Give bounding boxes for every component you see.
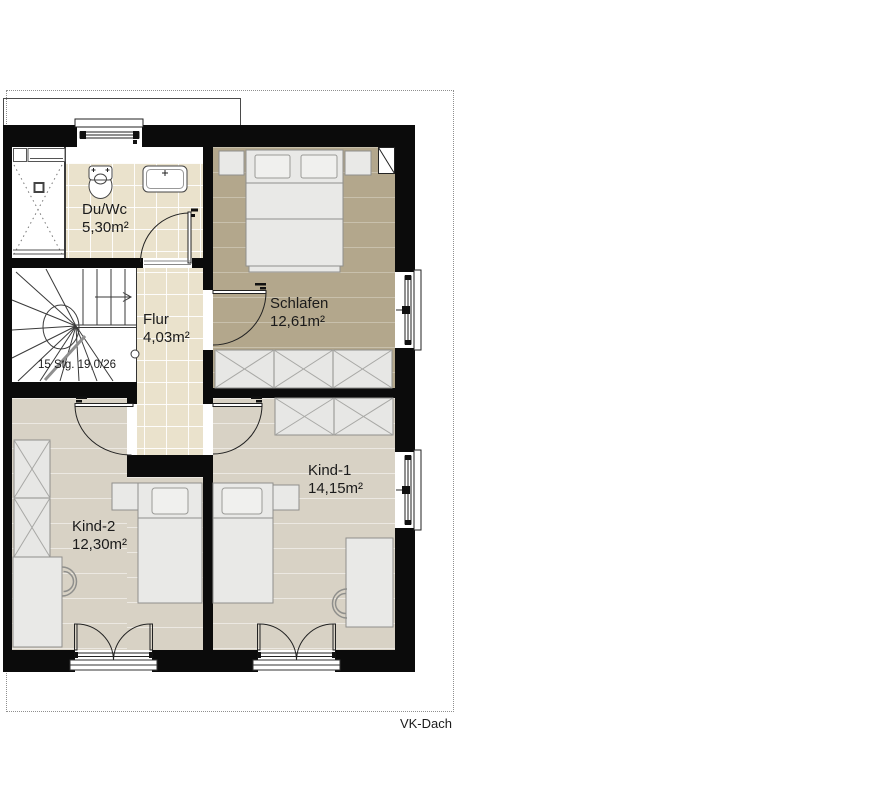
room-area: 14,15m² xyxy=(308,480,363,498)
kind1-floor xyxy=(213,398,395,650)
room-label-flur: Flur 4,03m² xyxy=(143,311,190,347)
room-area: 4,03m² xyxy=(143,329,190,347)
wall-segment-right xyxy=(395,147,415,672)
french-door-opening-kind1 xyxy=(258,650,335,672)
wall-segment-stairs-bottom xyxy=(3,382,137,398)
room-label-kind1: Kind-1 14,15m² xyxy=(308,462,363,498)
room-name: Flur xyxy=(143,311,190,329)
plan-title: VK-Dach xyxy=(352,716,452,731)
bath-knee-wall-band xyxy=(12,147,203,164)
room-area: 5,30m² xyxy=(82,219,129,237)
door-opening-duwc xyxy=(143,258,192,268)
wall-segment-kind-divider xyxy=(203,477,213,650)
room-area: 12,30m² xyxy=(72,536,127,554)
wall-segment-flur-cap xyxy=(127,455,213,477)
kind2-floor-extension xyxy=(127,477,203,650)
room-name: Kind-2 xyxy=(72,518,127,536)
room-label-duwc: Du/Wc 5,30m² xyxy=(82,201,129,237)
wall-segment-top xyxy=(3,125,415,147)
room-label-schlafen: Schlafen 12,61m² xyxy=(270,295,328,331)
window-opening-top xyxy=(77,125,142,147)
room-name: Schlafen xyxy=(270,295,328,313)
wall-segment-bottom xyxy=(3,650,415,672)
floor-plan-page: { "drawing": { "plan_label": "VK-Dach", … xyxy=(0,0,883,785)
wall-shower-partition xyxy=(64,147,66,258)
stairs-note: 15 Stg. 19,0/26 xyxy=(38,359,116,372)
room-name: Du/Wc xyxy=(82,201,129,219)
wall-segment-left xyxy=(3,147,12,672)
shower-floor xyxy=(12,163,64,258)
flur-floor xyxy=(137,266,203,455)
window-opening-kind1 xyxy=(395,452,415,528)
door-opening-kind1 xyxy=(203,404,213,455)
schlafen-floor xyxy=(213,147,395,388)
wall-segment-schlafen-kind1 xyxy=(203,388,395,398)
wall-segment-center-vertical xyxy=(203,147,213,398)
door-opening-kind2 xyxy=(127,404,137,455)
room-name: Kind-1 xyxy=(308,462,363,480)
room-area: 12,61m² xyxy=(270,313,328,331)
french-door-opening-kind2 xyxy=(75,650,152,672)
door-opening-schlafen xyxy=(203,290,213,350)
window-opening-schlafen xyxy=(395,272,415,348)
room-label-kind2: Kind-2 12,30m² xyxy=(72,518,127,554)
